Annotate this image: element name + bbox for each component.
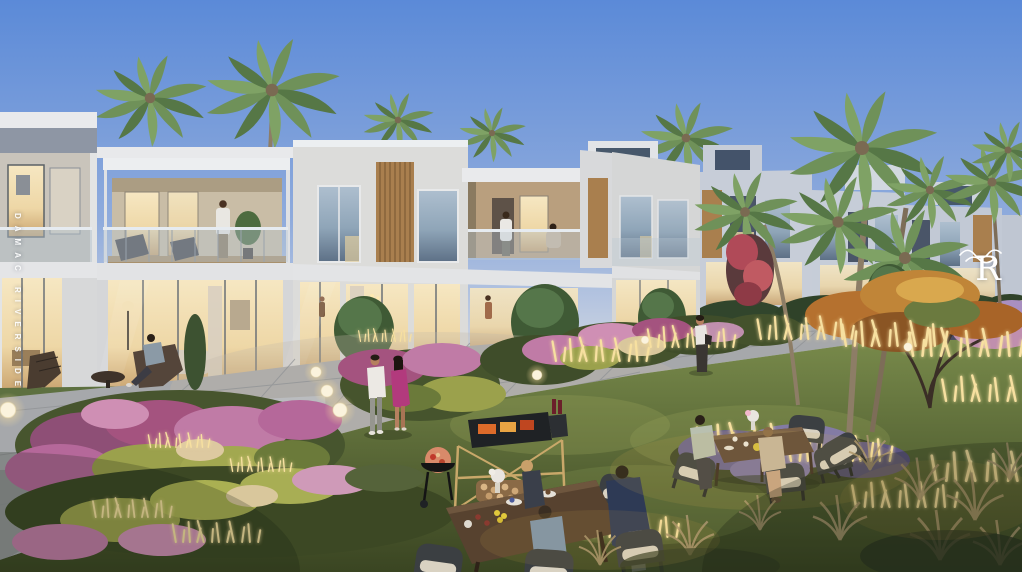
cypress-tree — [184, 314, 206, 390]
brand-vertical-text: DAMAC RIVERSIDE — [13, 213, 22, 393]
bougainvillea-shrub — [726, 234, 774, 306]
brand-logo-wave-icon — [956, 248, 1004, 266]
wood-slat-screen — [376, 162, 414, 262]
riverside-render: DAMAC RIVERSIDE R — [0, 0, 1022, 572]
brand-logo: R — [956, 252, 1020, 286]
scene-canvas — [0, 0, 1022, 572]
